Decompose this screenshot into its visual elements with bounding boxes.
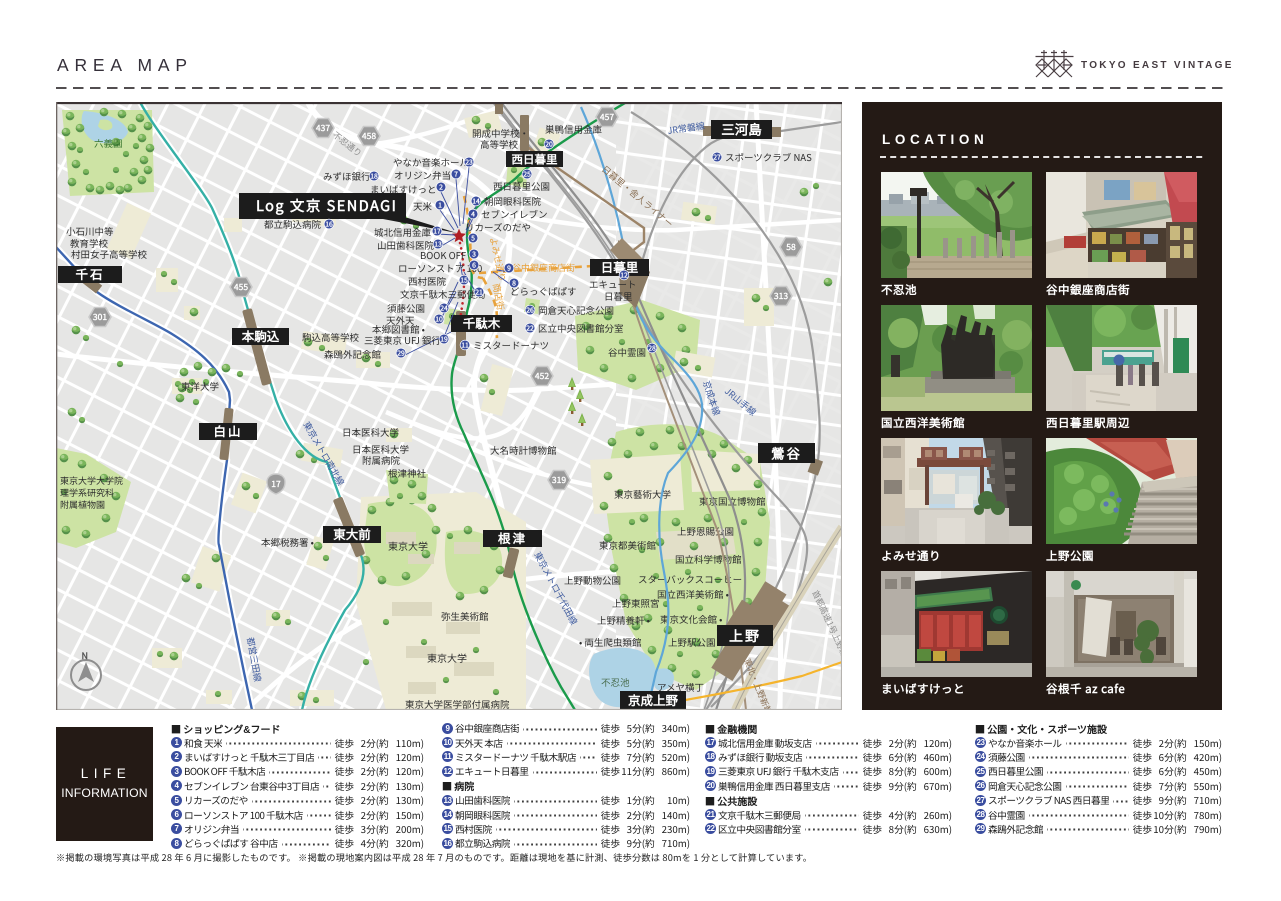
svg-text:根津: 根津 <box>498 528 527 547</box>
svg-text:鶯谷: 鶯谷 <box>771 443 802 463</box>
svg-text:千石: 千石 <box>75 264 104 283</box>
svg-text:14: 14 <box>472 196 480 206</box>
svg-text:国立科学博物館: 国立科学博物館 <box>675 552 742 566</box>
svg-text:上野精養軒 •: 上野精養軒 • <box>597 613 650 627</box>
svg-text:27: 27 <box>713 152 721 162</box>
svg-text:本郷税務署 •: 本郷税務署 • <box>261 535 314 549</box>
svg-text:東京都美術館: 東京都美術館 <box>599 538 657 552</box>
svg-text:20: 20 <box>545 139 553 149</box>
svg-text:セブンイレブン: セブンイレブン <box>481 207 548 221</box>
svg-text:西村医院: 西村医院 <box>408 274 447 288</box>
svg-text:京成上野: 京成上野 <box>628 690 679 709</box>
svg-text:みずほ銀行: みずほ銀行 <box>323 169 371 183</box>
svg-text:1: 1 <box>438 200 442 210</box>
svg-text:西日暮里公園: 西日暮里公園 <box>493 179 550 193</box>
svg-text:東京大学: 東京大学 <box>388 538 428 553</box>
svg-text:10: 10 <box>435 314 443 324</box>
svg-text:やなか音楽ホール: やなか音楽ホール <box>393 155 470 169</box>
svg-text:29: 29 <box>397 348 405 358</box>
svg-text:東大前: 東大前 <box>332 524 371 543</box>
svg-text:岡倉天心記念公園: 岡倉天心記念公園 <box>538 303 614 317</box>
svg-text:三河島: 三河島 <box>721 119 762 139</box>
svg-text:朝岡眼科医院: 朝岡眼科医院 <box>484 194 542 208</box>
svg-text:森鴎外記念館: 森鴎外記念館 <box>324 347 382 361</box>
svg-text:25: 25 <box>523 169 531 179</box>
svg-text:8: 8 <box>512 278 516 288</box>
svg-text:リカーズのだや: リカーズのだや <box>465 220 531 234</box>
svg-text:24: 24 <box>440 303 448 313</box>
svg-text:西日暮里: 西日暮里 <box>512 152 558 168</box>
svg-text:日本医科大学: 日本医科大学 <box>342 425 399 439</box>
svg-text:58: 58 <box>785 241 796 253</box>
svg-text:東洋大学: 東洋大学 <box>181 379 219 393</box>
svg-text:4: 4 <box>470 209 475 219</box>
svg-text:2: 2 <box>439 182 443 192</box>
svg-text:9: 9 <box>507 263 511 273</box>
svg-text:六義園: 六義園 <box>94 136 123 150</box>
svg-text:455: 455 <box>233 281 248 293</box>
svg-text:17: 17 <box>271 478 281 490</box>
svg-text:不忍池: 不忍池 <box>601 675 630 689</box>
svg-text:まいばすけっと: まいばすけっと <box>370 182 437 196</box>
svg-text:上野動物公園: 上野動物公園 <box>564 573 621 587</box>
svg-text:東京大学: 東京大学 <box>427 650 467 665</box>
svg-text:高等学校: 高等学校 <box>480 137 519 151</box>
svg-text:どらっぐぱぱす: どらっぐぱぱす <box>510 284 577 298</box>
svg-text:5: 5 <box>470 233 475 243</box>
svg-text:谷中銀座商店街: 谷中銀座商店街 <box>512 261 575 274</box>
svg-text:谷中霊園: 谷中霊園 <box>608 345 646 359</box>
svg-text:Log 文京 SENDAGI: Log 文京 SENDAGI <box>256 195 397 216</box>
svg-text:上野: 上野 <box>729 626 761 646</box>
svg-text:スポーツクラブ NAS: スポーツクラブ NAS <box>725 150 812 164</box>
svg-text:都立駒込病院: 都立駒込病院 <box>264 217 322 231</box>
svg-text:458: 458 <box>361 130 376 142</box>
svg-text:駒込高等学校: 駒込高等学校 <box>302 330 360 344</box>
svg-text:313: 313 <box>774 290 788 302</box>
svg-text:437: 437 <box>315 122 330 134</box>
svg-text:弥生美術館: 弥生美術館 <box>441 609 489 623</box>
svg-text:15: 15 <box>460 275 468 285</box>
svg-text:オリジン弁当: オリジン弁当 <box>394 168 451 182</box>
svg-text:天米: 天米 <box>413 199 433 213</box>
svg-text:28: 28 <box>648 343 656 353</box>
svg-text:7: 7 <box>454 169 458 179</box>
svg-text:319: 319 <box>552 474 566 486</box>
svg-text:6: 6 <box>472 260 476 270</box>
svg-text:千駄木: 千駄木 <box>463 313 501 332</box>
svg-text:301: 301 <box>93 311 107 323</box>
svg-text:巣鴨信用金庫: 巣鴨信用金庫 <box>545 122 603 136</box>
svg-text:上野東照宮: 上野東照宮 <box>612 596 660 610</box>
svg-text:根津神社: 根津神社 <box>388 466 427 480</box>
svg-text:23: 23 <box>465 157 473 167</box>
svg-text:附属病院: 附属病院 <box>362 453 401 467</box>
svg-text:文京千駄木三郵便局: 文京千駄木三郵便局 <box>400 287 486 301</box>
svg-text:3: 3 <box>472 249 476 259</box>
svg-text:附属植物園: 附属植物園 <box>60 498 105 511</box>
svg-text:東京大学医学部付属病院: 東京大学医学部付属病院 <box>405 697 510 710</box>
svg-text:452: 452 <box>534 370 549 382</box>
svg-text:上野恩賜公園: 上野恩賜公園 <box>677 524 734 538</box>
svg-text:12: 12 <box>620 270 628 280</box>
svg-text:区立中央図書館分室: 区立中央図書館分室 <box>538 321 624 335</box>
svg-text:城北信用金庫: 城北信用金庫 <box>374 225 432 239</box>
svg-text:ミスタードーナツ: ミスタードーナツ <box>473 338 549 352</box>
svg-text:• 両生爬虫類館: • 両生爬虫類館 <box>579 635 642 649</box>
svg-text:22: 22 <box>526 323 534 333</box>
svg-text:日暮里: 日暮里 <box>604 289 633 303</box>
svg-text:N: N <box>82 649 89 662</box>
svg-text:村田女子高等学校: 村田女子高等学校 <box>71 247 148 261</box>
svg-text:16: 16 <box>325 219 333 229</box>
svg-text:21: 21 <box>475 287 483 297</box>
svg-text:26: 26 <box>526 305 534 315</box>
svg-text:19: 19 <box>440 334 448 344</box>
svg-text:三菱東京 UFJ 銀行: 三菱東京 UFJ 銀行 <box>364 333 441 347</box>
svg-text:11: 11 <box>461 340 469 350</box>
svg-text:17: 17 <box>433 226 441 236</box>
svg-text:白山: 白山 <box>213 421 242 440</box>
svg-text:上野駅公園: 上野駅公園 <box>668 635 716 649</box>
svg-text:大名時計博物館: 大名時計博物館 <box>490 443 557 457</box>
svg-text:本駒込: 本駒込 <box>241 326 280 345</box>
svg-text:18: 18 <box>370 171 378 181</box>
svg-text:BOOK OFF: BOOK OFF <box>420 248 466 262</box>
